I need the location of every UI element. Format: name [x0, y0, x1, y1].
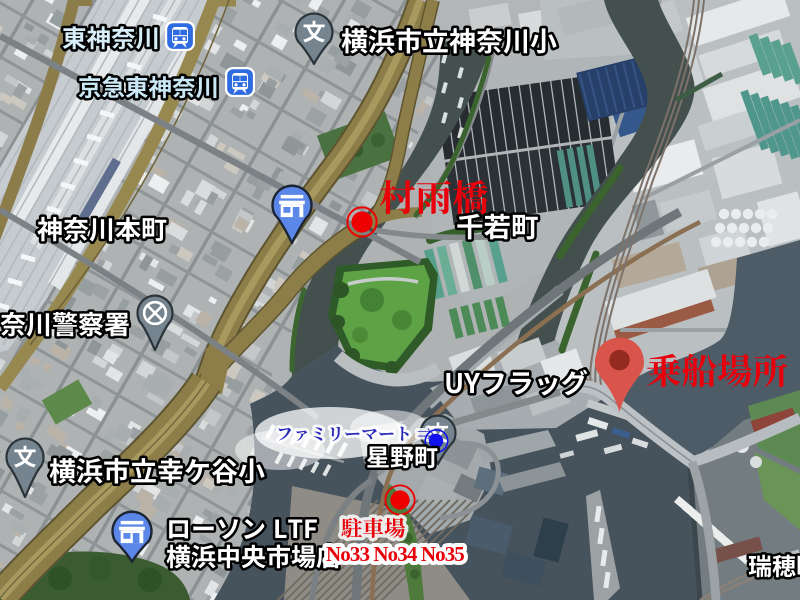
svg-text:No33 No34 No35: No33 No34 No35	[326, 542, 464, 566]
